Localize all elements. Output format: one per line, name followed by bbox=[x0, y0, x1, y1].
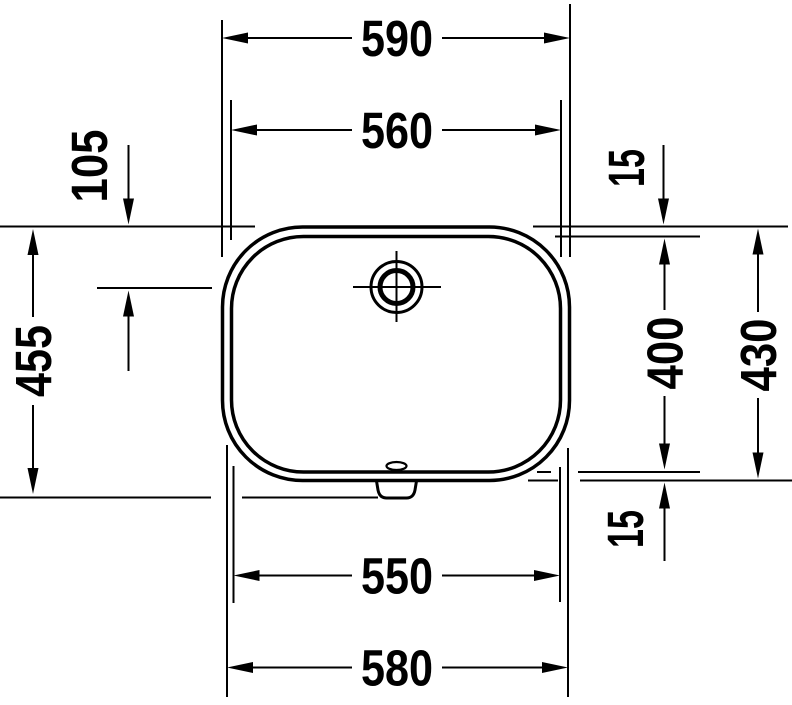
dimension-basin-depth: 400 bbox=[636, 239, 693, 470]
drain-outlet bbox=[377, 481, 417, 498]
arrowhead-left bbox=[234, 570, 260, 581]
arrowhead-right bbox=[535, 125, 561, 136]
arrowhead-up bbox=[123, 291, 134, 317]
basin bbox=[223, 227, 570, 498]
dimension-basin-width-bottom: 550 bbox=[234, 547, 561, 604]
dimension-550-label: 550 bbox=[361, 547, 433, 604]
arrowhead-down bbox=[753, 453, 764, 479]
arrowhead-right bbox=[544, 33, 570, 44]
arrowhead-left bbox=[231, 125, 257, 136]
dimension-overall-depth: 455 bbox=[5, 229, 62, 494]
drawing-canvas: 590 560 105 15 455 400 bbox=[0, 0, 792, 705]
arrowhead-up bbox=[753, 229, 764, 255]
dimension-430-label: 430 bbox=[730, 319, 787, 392]
dimension-455-label: 455 bbox=[5, 325, 62, 397]
dimension-outer-depth: 430 bbox=[730, 229, 787, 479]
dimension-rim-overhang-bottom: 15 bbox=[597, 483, 670, 562]
dimension-590-label: 590 bbox=[361, 10, 433, 67]
arrowhead-up bbox=[28, 229, 39, 255]
technical-drawing: 590 560 105 15 455 400 bbox=[0, 0, 792, 705]
dimension-15-top-label: 15 bbox=[598, 149, 655, 187]
dimension-outer-width-top: 590 bbox=[222, 10, 570, 67]
arrowhead-down bbox=[658, 199, 669, 225]
dimension-basin-width-top: 560 bbox=[231, 102, 561, 159]
overflow-hole bbox=[353, 251, 441, 322]
dimension-overflow-offset: 105 bbox=[61, 130, 134, 372]
dimension-400-label: 400 bbox=[636, 317, 693, 390]
arrowhead-left bbox=[227, 662, 253, 673]
dimension-rim-overhang-top: 15 bbox=[598, 145, 669, 225]
arrowhead-right bbox=[534, 570, 560, 581]
dimension-105-label: 105 bbox=[61, 130, 118, 203]
dimension-15-bottom-label: 15 bbox=[597, 510, 654, 548]
arrowhead-right bbox=[542, 662, 568, 673]
arrowhead-down bbox=[123, 199, 134, 225]
arrowhead-down bbox=[28, 468, 39, 494]
arrowhead-up bbox=[659, 239, 670, 265]
arrowhead-left bbox=[222, 33, 248, 44]
dimension-560-label: 560 bbox=[361, 102, 433, 159]
drain-hole bbox=[387, 462, 407, 470]
dimension-outer-width-bottom: 580 bbox=[227, 639, 568, 696]
dimension-580-label: 580 bbox=[361, 639, 433, 696]
arrowhead-down bbox=[659, 444, 670, 470]
arrowhead-up bbox=[659, 483, 670, 509]
